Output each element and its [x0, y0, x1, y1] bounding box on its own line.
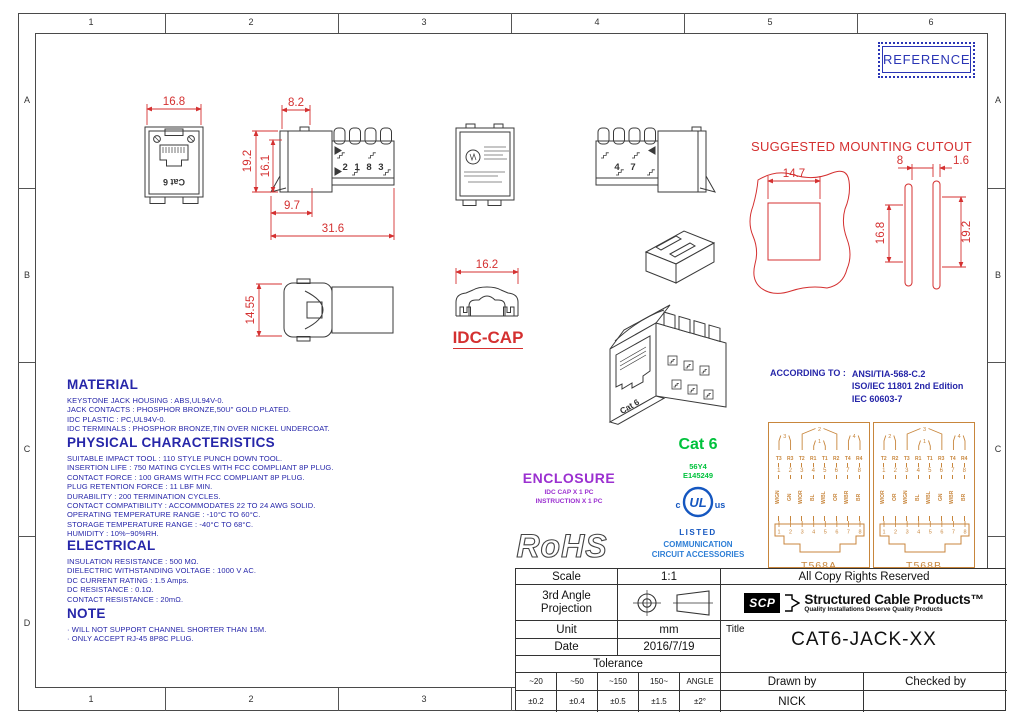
enclosure-line: INSTRUCTION X 1 PC	[513, 498, 625, 507]
tolerance-value: ±1.5	[639, 691, 680, 712]
grid-divider	[338, 13, 339, 33]
listing-line: CIRCUIT ACCESSORIES	[648, 550, 748, 560]
wire-color-label: W/OR	[796, 479, 808, 516]
wire-color-label: BL	[913, 479, 925, 516]
pin-label: T4	[947, 456, 959, 463]
section-title: MATERIAL	[67, 377, 417, 392]
wire-color-label: W/BR	[947, 479, 959, 516]
wire-color-label: W/GN	[773, 479, 785, 516]
wire-color-label: GN	[785, 479, 797, 516]
tolerance-header: ANGLE	[680, 673, 721, 691]
certification-block: Cat 6 56Y4E145249 UL c us LISTED COMMUNI…	[648, 436, 748, 559]
grid-col-label: 5	[758, 17, 782, 27]
projection-symbol	[618, 585, 721, 621]
scp-arrow-icon	[784, 592, 800, 614]
pin-label: R2	[831, 456, 843, 463]
grid-divider	[18, 536, 35, 537]
wire-color-label: W/BL	[819, 479, 831, 516]
projection-label: 3rd Angle Projection	[516, 585, 618, 621]
grid-row-label: A	[986, 95, 1010, 105]
standard-line: ANSI/TIA-568-C.2	[852, 368, 964, 380]
connector-pin-number: 3	[906, 530, 909, 536]
pin-number: 2	[890, 467, 902, 475]
pin-label: R1	[913, 456, 925, 463]
enclosure-title: ENCLOSURE	[513, 470, 625, 486]
pin-number: 1	[878, 467, 890, 475]
pin-label: R3	[785, 456, 797, 463]
spec-line: CONTACT RESISTANCE : 20mΩ.	[67, 595, 417, 604]
spec-line: DC CURRENT RATING : 1.5 Amps.	[67, 576, 417, 585]
wire-color-label: BL	[808, 479, 820, 516]
spec-line: CONTACT FORCE : 100 GRAMS WITH FCC COMPL…	[67, 473, 417, 482]
pin-number: 4	[913, 467, 925, 475]
wire-color-label: OR	[831, 479, 843, 516]
tolerance-value: ±2°	[680, 691, 721, 712]
pin-number: 6	[936, 467, 948, 475]
spec-line: IDC TERMINALS : PHOSPHOR BRONZE,TIN OVER…	[67, 424, 417, 433]
connector-pin-number: 8	[963, 530, 966, 536]
pin-number: 8	[959, 467, 971, 475]
scp-logo: SCP	[744, 593, 780, 613]
wire-color-label: W/BL	[924, 479, 936, 516]
brand-tagline: Quality Installations Deserve Quality Pr…	[804, 606, 983, 613]
svg-text:UL: UL	[689, 495, 706, 510]
section-physical: PHYSICAL CHARACTERISTICS SUITABLE IMPACT…	[67, 435, 417, 539]
drawing-sheet: 1 2 3 4 5 6 1 2 3 A B C D A B C D Cat 6	[0, 0, 1024, 724]
standard-line: ISO/IEC 11801 2nd Edition	[852, 380, 964, 392]
wire-color-label: BR	[854, 479, 866, 516]
unit-label: Unit	[516, 621, 618, 639]
spec-line: SUITABLE IMPACT TOOL : 110 STYLE PUNCH D…	[67, 454, 417, 463]
grid-col-label: 1	[79, 17, 103, 27]
scale-label: Scale	[516, 569, 618, 585]
pair-number: 2	[818, 427, 821, 433]
grid-col-label: 3	[412, 17, 436, 27]
pin-label: T3	[901, 456, 913, 463]
standards-block: ACCORDING TO : ANSI/TIA-568-C.2ISO/IEC 1…	[770, 368, 963, 405]
category-label: Cat 6	[648, 436, 748, 454]
tolerance-header: ~20	[516, 673, 557, 691]
pin-number: 7	[842, 467, 854, 475]
title-block: Scale 1:1 3rd Angle Projection Unit mm D…	[515, 568, 1006, 711]
connector-pin-number: 7	[847, 530, 850, 536]
pin-number: 3	[796, 467, 808, 475]
section-note: NOTE · WILL NOT SUPPORT CHANNEL SHORTER …	[67, 606, 417, 644]
wire-color-label: GN	[936, 479, 948, 516]
connector-pin-number: 2	[894, 530, 897, 536]
tolerance-label: Tolerance	[516, 656, 721, 673]
pair-number: 3	[923, 427, 926, 433]
spec-line: DURABILITY : 200 TERMINATION CYCLES.	[67, 492, 417, 501]
ul-listed-icon: UL c us	[656, 483, 740, 523]
grid-divider	[988, 362, 1006, 363]
standard-line: IEC 60603-7	[852, 393, 964, 405]
grid-col-label: 1	[79, 694, 103, 704]
pair-number: 1	[818, 439, 821, 445]
wire-color-label: W/GN	[901, 479, 913, 516]
wire-color-label: W/BR	[842, 479, 854, 516]
according-label: ACCORDING TO :	[770, 368, 846, 405]
grid-row-label: D	[15, 618, 39, 628]
date-value: 2016/7/19	[618, 639, 721, 656]
connector-pin-number: 2	[789, 530, 792, 536]
pair-arcs: 3214	[769, 423, 870, 451]
connector-pin-number: 1	[882, 530, 885, 536]
pair-number: 2	[888, 434, 891, 440]
grid-col-label: 4	[585, 17, 609, 27]
connector-outline: 12345678	[769, 521, 870, 554]
scale-value: 1:1	[618, 569, 721, 585]
pin-label: T1	[924, 456, 936, 463]
date-label: Date	[516, 639, 618, 656]
cutout-title: SUGGESTED MOUNTING CUTOUT	[735, 139, 988, 154]
grid-divider	[684, 13, 685, 33]
note-line: · WILL NOT SUPPORT CHANNEL SHORTER THAN …	[67, 625, 417, 634]
grid-divider	[165, 688, 166, 711]
section-material: MATERIAL KEYSTONE JACK HOUSING : ABS,UL9…	[67, 377, 417, 434]
spec-line: CONTACT COMPATIBILITY : ACCOMMODATES 22 …	[67, 501, 417, 510]
pin-number: 5	[924, 467, 936, 475]
grid-row-label: B	[15, 270, 39, 280]
brand-cell: SCP Structured Cable Products™ Quality I…	[721, 585, 1007, 621]
third-angle-projection-icon	[619, 586, 720, 620]
tolerance-value: ±0.2	[516, 691, 557, 712]
spec-line: JACK CONTACTS : PHOSPHOR BRONZE,50U" GOL…	[67, 405, 417, 414]
ul-file-code: 56Y4	[648, 462, 748, 471]
pin-number: 1	[773, 467, 785, 475]
pin-label: R3	[936, 456, 948, 463]
pin-number: 5	[819, 467, 831, 475]
idc-cap-label: IDC-CAP	[448, 328, 528, 348]
pin-number: 8	[854, 467, 866, 475]
connector-pin-number: 6	[940, 530, 943, 536]
tolerance-header: ~50	[557, 673, 598, 691]
grid-divider	[511, 13, 512, 33]
svg-text:c: c	[675, 500, 680, 510]
connector-pin-number: 8	[858, 530, 861, 536]
pin-label: R4	[959, 456, 971, 463]
section-title: NOTE	[67, 606, 417, 621]
copyright-text: All Copy Rights Reserved	[721, 569, 1007, 585]
ul-file-code: E145249	[648, 471, 748, 480]
pin-number: 3	[901, 467, 913, 475]
grid-divider	[857, 13, 858, 33]
connector-pin-number: 5	[824, 530, 827, 536]
idc-cap-label-text: IDC-CAP	[453, 328, 524, 349]
spec-line: INSULATION RESISTANCE : 500 MΩ.	[67, 557, 417, 566]
drawing-title: CAT6-JACK-XX	[791, 629, 937, 651]
drawn-by-value: NICK	[721, 691, 864, 712]
section-electrical: ELECTRICAL INSULATION RESISTANCE : 500 M…	[67, 538, 417, 604]
drawn-by-label: Drawn by	[721, 673, 864, 691]
section-title: ELECTRICAL	[67, 538, 417, 553]
spec-line: IDC PLASTIC : PC,UL94V-0.	[67, 415, 417, 424]
spec-line: INSERTION LIFE : 750 MATING CYCLES WITH …	[67, 463, 417, 472]
listing-line: COMMUNICATION	[648, 540, 748, 550]
grid-divider	[511, 688, 512, 711]
unit-value: mm	[618, 621, 721, 639]
tolerance-value: ±0.4	[557, 691, 598, 712]
pin-label: R2	[890, 456, 902, 463]
pin-number: 7	[947, 467, 959, 475]
grid-divider	[988, 188, 1006, 189]
grid-row-label: A	[15, 95, 39, 105]
pin-number: 2	[785, 467, 797, 475]
connector-pin-number: 5	[929, 530, 932, 536]
connector-pin-number: 6	[835, 530, 838, 536]
grid-col-label: 6	[919, 17, 943, 27]
spec-line: PLUG RETENTION FORCE : 11 LBF MIN.	[67, 482, 417, 491]
svg-text:us: us	[715, 500, 726, 510]
wire-color-label: BR	[959, 479, 971, 516]
pin-number: 4	[808, 467, 820, 475]
pin-label: T4	[842, 456, 854, 463]
wire-color-label: OR	[890, 479, 902, 516]
grid-divider	[18, 362, 35, 363]
brand-name: Structured Cable Products™	[804, 593, 983, 606]
connector-pin-number: 1	[777, 530, 780, 536]
reference-stamp-text: REFERENCE	[882, 46, 971, 73]
grid-divider	[18, 188, 35, 189]
wiring-diagram-t568b: 2314T2R2T3R1T1R3T4R412345678W/ORORW/GNBL…	[873, 422, 975, 568]
enclosure-line: IDC CAP X 1 PC	[513, 489, 625, 498]
grid-col-label: 3	[412, 694, 436, 704]
grid-divider	[165, 13, 166, 33]
grid-divider	[988, 536, 1006, 537]
pair-arcs: 2314	[874, 423, 975, 451]
connector-pin-number: 3	[801, 530, 804, 536]
spec-line: OPERATING TEMPERATURE RANGE : -10°C TO 6…	[67, 510, 417, 519]
spec-line: STORAGE TEMPERATURE RANGE : -40°C TO 68°…	[67, 520, 417, 529]
reference-stamp: REFERENCE	[878, 42, 975, 78]
connector-outline: 12345678	[874, 521, 975, 554]
pin-label: R1	[808, 456, 820, 463]
pin-label: T1	[819, 456, 831, 463]
checked-by-value	[864, 691, 1007, 712]
tolerance-header: ~150	[598, 673, 639, 691]
spec-line: DC RESISTANCE : 0.1Ω.	[67, 585, 417, 594]
pin-label: T2	[878, 456, 890, 463]
title-label: Title	[726, 624, 745, 635]
pair-number: 4	[958, 434, 961, 440]
tolerance-value: ±0.5	[598, 691, 639, 712]
title-cell: Title CAT6-JACK-XX	[721, 621, 1007, 673]
section-title: PHYSICAL CHARACTERISTICS	[67, 435, 417, 450]
ul-listed-label: LISTED	[648, 528, 748, 537]
spec-line: KEYSTONE JACK HOUSING : ABS,UL94V-0.	[67, 396, 417, 405]
grid-col-label: 2	[239, 17, 263, 27]
connector-pin-number: 7	[952, 530, 955, 536]
grid-col-label: 2	[239, 694, 263, 704]
pin-label: R4	[854, 456, 866, 463]
connector-pin-number: 4	[812, 530, 815, 536]
spec-line: DIELECTRIC WITHSTANDING VOLTAGE : 1000 V…	[67, 566, 417, 575]
grid-row-label: C	[986, 444, 1010, 454]
pair-number: 3	[783, 434, 786, 440]
wire-color-label: W/OR	[878, 479, 890, 516]
note-line: · ONLY ACCEPT RJ-45 8P8C PLUG.	[67, 634, 417, 643]
pair-number: 4	[853, 434, 856, 440]
pin-number: 6	[831, 467, 843, 475]
connector-pin-number: 4	[917, 530, 920, 536]
pin-label: T3	[773, 456, 785, 463]
grid-divider	[338, 688, 339, 711]
tolerance-header: 150~	[639, 673, 680, 691]
checked-by-label: Checked by	[864, 673, 1007, 691]
pair-number: 1	[923, 439, 926, 445]
wiring-diagram-t568a: 3214T3R3T2R1T1R2T4R412345678W/GNGNW/ORBL…	[768, 422, 870, 568]
enclosure-block: ENCLOSURE IDC CAP X 1 PCINSTRUCTION X 1 …	[513, 470, 625, 506]
grid-row-label: C	[15, 444, 39, 454]
pin-label: T2	[796, 456, 808, 463]
grid-row-label: B	[986, 270, 1010, 280]
